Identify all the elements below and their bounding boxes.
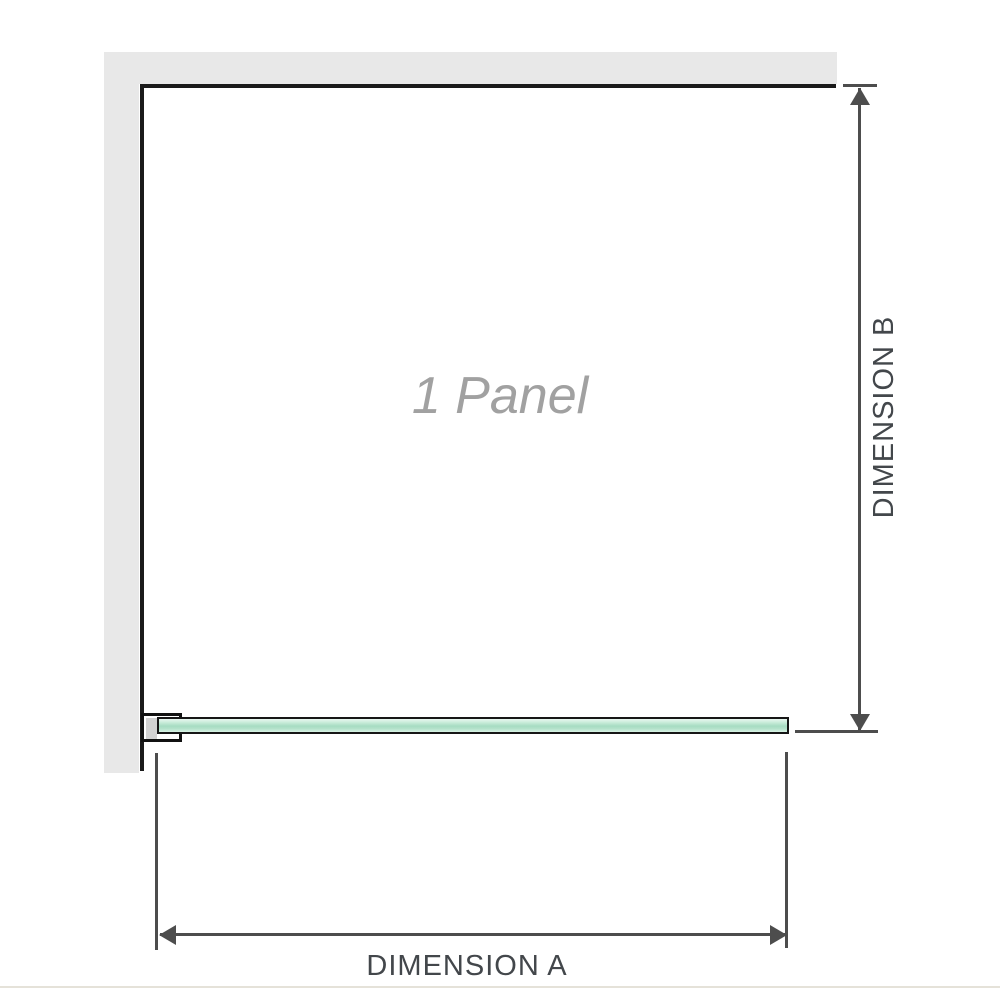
dimension-b-label: DIMENSION B xyxy=(868,287,900,547)
wall-bracket-pad xyxy=(146,718,157,739)
enclosure-left-edge xyxy=(140,84,144,771)
arrow-right-icon xyxy=(770,925,787,945)
wall-top xyxy=(104,52,837,84)
dimension-b-tick-top xyxy=(843,84,877,87)
arrow-left-icon xyxy=(159,925,176,945)
dimension-a-extension-right xyxy=(785,752,788,948)
wall-left xyxy=(104,52,139,773)
photo-bottom-edge xyxy=(0,986,1000,988)
enclosure-top-edge xyxy=(140,84,836,88)
dimension-a-extension-left xyxy=(155,753,158,950)
dimension-a-line xyxy=(160,933,786,936)
arrow-up-icon xyxy=(850,88,870,105)
glass-panel xyxy=(157,717,789,734)
panel-count-label: 1 Panel xyxy=(375,366,625,426)
dimension-a-label: DIMENSION A xyxy=(342,950,592,983)
arrow-down-icon xyxy=(850,714,870,731)
shower-screen-diagram: 1 Panel DIMENSION B DIMENSION A xyxy=(0,0,1000,1000)
dimension-b-line xyxy=(858,88,861,731)
